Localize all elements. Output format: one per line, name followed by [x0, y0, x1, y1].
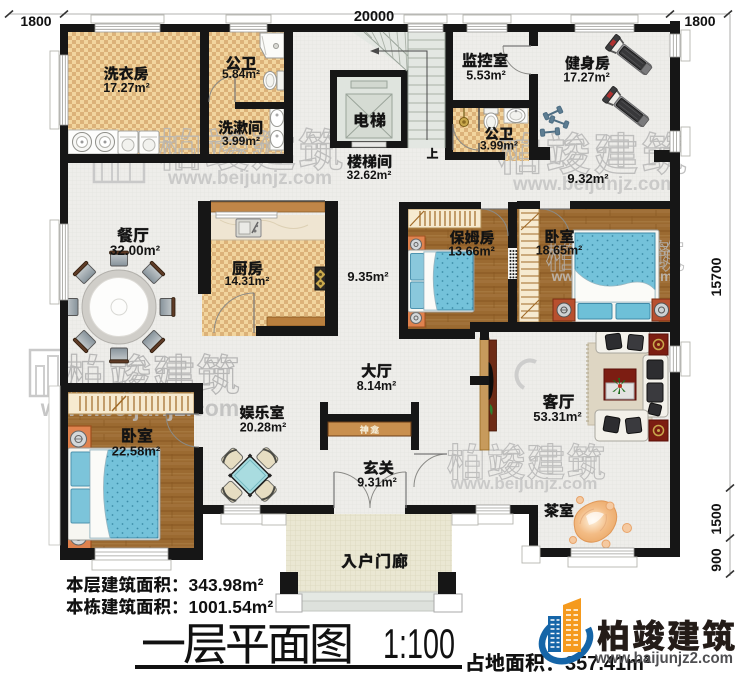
svg-text:9.31m²: 9.31m²: [357, 476, 397, 490]
svg-text:5.84m²: 5.84m²: [222, 67, 260, 81]
svg-text:17.27m²: 17.27m²: [563, 71, 610, 85]
svg-text:1500: 1500: [708, 503, 724, 534]
svg-text:1:100: 1:100: [383, 620, 455, 667]
svg-text:www.beijunjz.com: www.beijunjz.com: [167, 168, 332, 189]
svg-text:5.53m²: 5.53m²: [466, 69, 506, 83]
svg-text:8.14m²: 8.14m²: [357, 379, 397, 393]
svg-text:14.31m²: 14.31m²: [225, 274, 270, 288]
svg-text:1800: 1800: [684, 13, 715, 29]
svg-text:53.31m²: 53.31m²: [533, 409, 582, 424]
svg-text:1800: 1800: [20, 13, 51, 29]
svg-text:18.65m²: 18.65m²: [536, 244, 583, 258]
svg-text:22.58m²: 22.58m²: [112, 444, 161, 459]
svg-text:9.32m²: 9.32m²: [567, 171, 609, 186]
svg-text:20.28m²: 20.28m²: [240, 421, 287, 435]
svg-text:15700: 15700: [708, 257, 724, 296]
svg-text:32.00m²: 32.00m²: [110, 243, 161, 258]
svg-text:：343.98m²: ：343.98m²: [171, 575, 264, 595]
svg-text:20000: 20000: [354, 9, 394, 25]
svg-text:9.35m²: 9.35m²: [347, 269, 389, 284]
svg-text:www.baijunjz2.com: www.baijunjz2.com: [594, 650, 733, 667]
svg-text:：1001.54m²: ：1001.54m²: [171, 597, 273, 617]
svg-text:13.66m²: 13.66m²: [448, 245, 495, 259]
svg-text:32.62m²: 32.62m²: [347, 168, 392, 182]
svg-text:3.99m²: 3.99m²: [222, 134, 260, 148]
svg-text:17.27m²: 17.27m²: [103, 81, 150, 95]
svg-text:3.99m²: 3.99m²: [480, 139, 518, 153]
svg-text:900: 900: [708, 548, 724, 572]
svg-text:www.beijunjz.com: www.beijunjz.com: [450, 474, 598, 493]
